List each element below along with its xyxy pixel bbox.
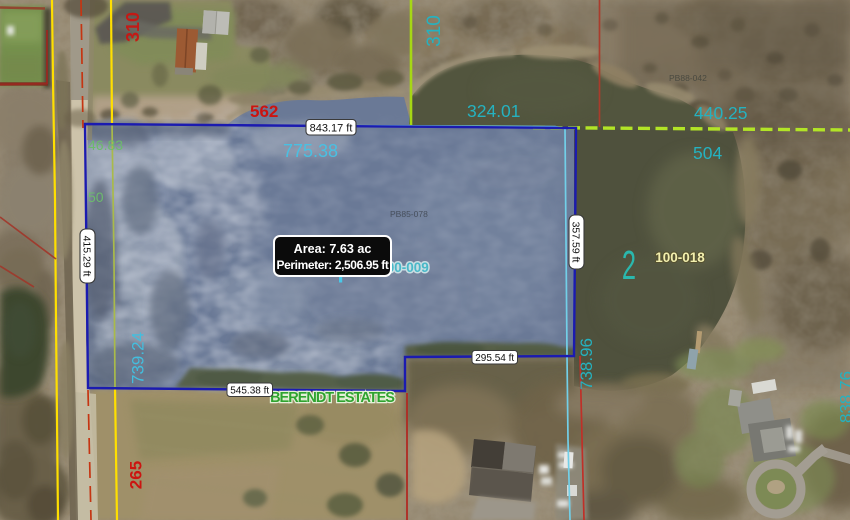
svg-text:415.29 ft: 415.29 ft <box>81 236 93 277</box>
svg-text:545.38 ft: 545.38 ft <box>230 386 269 397</box>
svg-text:738.96: 738.96 <box>577 338 596 390</box>
svg-text:843.17 ft: 843.17 ft <box>310 123 353 135</box>
svg-text:Area: 7.63 ac: Area: 7.63 ac <box>294 242 372 256</box>
svg-text:46.83: 46.83 <box>88 137 123 153</box>
svg-text:2: 2 <box>622 243 636 289</box>
svg-text:295.54 ft: 295.54 ft <box>475 353 514 364</box>
svg-text:310: 310 <box>123 12 143 42</box>
svg-text:BERENDT ESTATES: BERENDT ESTATES <box>270 390 395 406</box>
svg-text:100-018: 100-018 <box>655 250 705 265</box>
svg-text:PB85-078: PB85-078 <box>390 209 428 219</box>
svg-text:Perimeter: 2,506.95 ft: Perimeter: 2,506.95 ft <box>277 258 389 272</box>
svg-text:324.01: 324.01 <box>467 101 521 121</box>
svg-text:357.59 ft: 357.59 ft <box>570 222 582 263</box>
svg-text:PB88-042: PB88-042 <box>669 73 707 83</box>
svg-text:562: 562 <box>250 102 278 121</box>
svg-text:310: 310 <box>424 15 445 47</box>
svg-text:265: 265 <box>126 461 145 489</box>
svg-text:440.25: 440.25 <box>694 103 748 123</box>
svg-text:838.76: 838.76 <box>836 371 850 423</box>
svg-text:739.24: 739.24 <box>128 332 147 384</box>
svg-text:50: 50 <box>88 189 104 205</box>
svg-text:504: 504 <box>693 143 722 163</box>
svg-text:775.38: 775.38 <box>283 141 338 161</box>
